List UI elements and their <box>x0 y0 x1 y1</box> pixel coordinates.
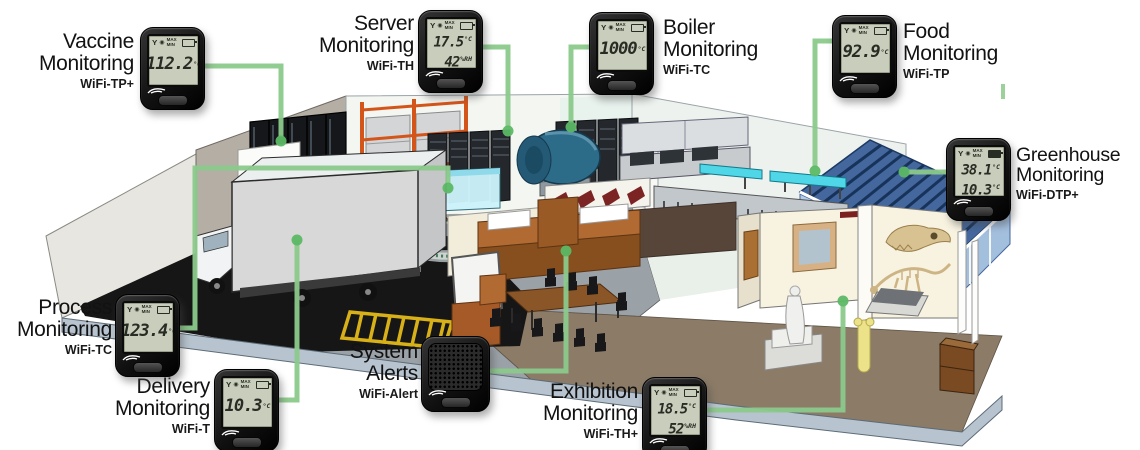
kitchen <box>545 117 750 216</box>
lcd-screen: Y ◉ MAX MIN 18.5°C 52%RH <box>649 384 702 437</box>
battery-icon <box>460 22 473 30</box>
partition-walls <box>238 142 658 238</box>
sensor-device-server: Y ◉ MAX MIN 17.5°C 42%RH <box>418 10 483 93</box>
easylog-logo-icon <box>596 71 616 80</box>
alarm-icon: ◉ <box>437 23 442 29</box>
alarm-icon: ◉ <box>134 307 139 313</box>
label-title: Greenhouse Monitoring <box>1016 145 1140 186</box>
wifi-antenna-icon: Y <box>844 27 849 34</box>
wifi-antenna-icon: Y <box>958 150 963 157</box>
lcd-screen: Y ◉ MAX MIN 123.4°C <box>122 301 175 354</box>
label-model: WiFi-DTP+ <box>1016 189 1140 202</box>
conveyor-belt <box>352 214 496 272</box>
battery-icon <box>874 27 887 35</box>
connector-process <box>177 168 448 328</box>
delivery-truck <box>196 150 446 307</box>
lcd-status-icons: Y ◉ MAX MIN <box>841 24 890 35</box>
lcd-reading: 1000°C <box>598 32 647 66</box>
connector-dot-vaccine-freezers <box>276 136 287 147</box>
easylog-logo-icon <box>428 388 448 397</box>
bone-exhibit <box>854 318 874 372</box>
alarm-icon: ◉ <box>233 382 238 388</box>
label-food-monitoring: Food Monitoring WiFi-TP <box>903 21 1053 81</box>
lcd-status-icons: Y ◉ MAX MIN <box>223 378 272 389</box>
lcd-status-icons: Y ◉ MAX MIN <box>427 19 476 30</box>
alarm-icon: ◉ <box>851 28 856 34</box>
lcd-screen: Y ◉ MAX MIN 17.5°C 42%RH <box>425 17 478 70</box>
statue <box>765 286 822 370</box>
easylog-logo-icon <box>839 74 859 83</box>
dinosaur-skull <box>886 225 950 251</box>
wifi-antenna-icon: Y <box>601 24 606 31</box>
label-model: WiFi-TH+ <box>482 428 638 441</box>
device-button <box>436 78 466 89</box>
device-button <box>660 445 690 450</box>
alarm-icon: ◉ <box>159 40 164 46</box>
label-title: Delivery Monitoring <box>62 376 210 420</box>
label-delivery-monitoring: Delivery Monitoring WiFi-T <box>62 376 210 436</box>
label-model: WiFi-TC <box>0 344 112 357</box>
food-display-cases <box>654 164 848 242</box>
connector-boiler <box>571 47 590 123</box>
connector-dot-server-racks <box>503 126 514 137</box>
battery-icon <box>631 24 644 32</box>
lcd-reading: 92.9°C <box>841 35 890 69</box>
lcd-status-icons: Y ◉ MAX MIN <box>651 386 700 397</box>
device-button <box>158 95 188 106</box>
lcd-status-icons: Y ◉ MAX MIN <box>598 21 647 32</box>
wifi-antenna-icon: Y <box>430 22 435 29</box>
device-button <box>133 362 163 373</box>
lcd-reading: 10.3°C <box>223 389 272 423</box>
interior-walls <box>448 202 736 276</box>
boiler <box>517 130 600 196</box>
wifi-monitoring-diagram: Vaccine Monitoring WiFi-TP+ Server Monit… <box>0 0 1140 450</box>
label-greenhouse-monitoring: Greenhouse Monitoring WiFi-DTP+ <box>1016 145 1140 202</box>
sensor-device-greenhouse: Y ◉ MAX MIN 38.1°C 10.3°C <box>946 138 1011 221</box>
max-min-icon: MAX MIN <box>616 23 626 32</box>
connector-dot-food-cases <box>810 166 821 177</box>
connector-exhibition <box>706 306 843 410</box>
label-title: Vaccine Monitoring <box>6 31 134 75</box>
lcd-screen: Y ◉ MAX MIN 1000°C <box>596 19 649 72</box>
lcd-status-icons: Y ◉ MAX MIN <box>149 36 198 47</box>
easylog-logo-icon <box>953 197 973 206</box>
alarm-icon: ◉ <box>661 390 666 396</box>
label-model: WiFi-T <box>62 423 210 436</box>
battery-icon <box>157 306 170 314</box>
wifi-antenna-icon: Y <box>152 39 157 46</box>
label-exhibition-monitoring: Exhibition Monitoring WiFi-TH+ <box>482 381 638 441</box>
sensor-device-delivery: Y ◉ MAX MIN 10.3°C <box>214 369 279 450</box>
max-min-icon: MAX MIN <box>669 388 679 397</box>
lcd-reading: 123.4°C <box>124 314 173 348</box>
framed-picture <box>793 222 836 272</box>
connector-alerts <box>488 256 566 371</box>
battery-icon <box>256 381 269 389</box>
device-button <box>850 83 880 94</box>
lcd-screen: Y ◉ MAX MIN 10.3°C <box>221 376 274 429</box>
easylog-logo-icon <box>122 353 142 362</box>
sensor-device-vaccine: Y ◉ MAX MIN 112.2°C <box>140 27 205 110</box>
glass-partition <box>292 168 500 218</box>
label-vaccine-monitoring: Vaccine Monitoring WiFi-TP+ <box>6 31 134 91</box>
display-cabinet <box>940 338 978 394</box>
wifi-antenna-icon: Y <box>226 381 231 388</box>
alert-speaker-device <box>421 336 490 412</box>
max-min-icon: MAX MIN <box>241 380 251 389</box>
back-walls <box>46 94 906 318</box>
lcd-reading: 38.1°C 10.3°C <box>955 158 1004 198</box>
meeting-chairs <box>490 268 627 352</box>
laboratory-bench <box>478 197 640 282</box>
sensor-device-boiler: Y ◉ MAX MIN 1000°C <box>589 12 654 95</box>
server-racks <box>428 118 638 209</box>
max-min-icon: MAX MIN <box>142 305 152 314</box>
alarm-icon: ◉ <box>608 25 613 31</box>
projector-screen <box>452 252 502 316</box>
device-button <box>441 397 471 408</box>
max-min-icon: MAX MIN <box>973 149 983 158</box>
label-system-alerts: System Alerts WiFi-Alert <box>288 341 418 401</box>
lcd-status-icons: Y ◉ MAX MIN <box>955 147 1004 158</box>
meeting-table <box>506 284 622 312</box>
connector-dot-lab-bench <box>561 246 572 257</box>
label-title: Process Monitoring <box>0 297 112 341</box>
label-process-monitoring: Process Monitoring WiFi-TC <box>0 297 112 357</box>
device-button <box>964 206 994 217</box>
wifi-antenna-icon: Y <box>127 306 132 313</box>
label-model: WiFi-TH <box>250 60 414 73</box>
max-min-icon: MAX MIN <box>859 26 869 35</box>
lcd-screen: Y ◉ MAX MIN 92.9°C <box>839 22 892 75</box>
label-model: WiFi-TP+ <box>6 78 134 91</box>
sensor-device-food: Y ◉ MAX MIN 92.9°C <box>832 15 897 98</box>
label-title: Exhibition Monitoring <box>482 381 638 425</box>
museum-gallery <box>738 205 978 394</box>
label-title: System Alerts <box>288 341 418 385</box>
easylog-logo-icon <box>425 69 445 78</box>
battery-icon <box>182 39 195 47</box>
label-title: Boiler Monitoring <box>663 17 833 61</box>
sensor-device-exhibition: Y ◉ MAX MIN 18.5°C 52%RH <box>642 377 707 450</box>
label-model: WiFi-TC <box>663 64 833 77</box>
label-model: WiFi-Alert <box>288 388 418 401</box>
connector-dot-boiler <box>566 122 577 133</box>
label-title: Server Monitoring <box>250 13 414 57</box>
wooden-door <box>744 230 758 280</box>
speaker-grille <box>428 343 483 391</box>
lcd-reading: 17.5°C 42%RH <box>427 30 476 70</box>
connector-server <box>480 47 508 127</box>
max-min-icon: MAX MIN <box>445 21 455 30</box>
connector-vaccine <box>203 66 281 137</box>
lcd-screen: Y ◉ MAX MIN 112.2°C <box>147 34 200 87</box>
alarm-icon: ◉ <box>965 151 970 157</box>
vaccine-freezers <box>250 112 346 202</box>
lcd-reading: 18.5°C 52%RH <box>651 397 700 437</box>
easylog-logo-icon <box>649 436 669 445</box>
easylog-logo-icon <box>221 428 241 437</box>
connector-dot-truck <box>292 235 303 246</box>
sensor-device-process: Y ◉ MAX MIN 123.4°C <box>115 294 180 377</box>
label-server-monitoring: Server Monitoring WiFi-TH <box>250 13 414 73</box>
wifi-antenna-icon: Y <box>654 389 659 396</box>
floor-display-case <box>866 288 928 316</box>
pallet-racking <box>362 96 466 196</box>
connector-dot-museum <box>838 296 849 307</box>
connector-dot-conveyor <box>443 183 454 194</box>
device-button <box>607 80 637 91</box>
battery-icon <box>988 150 1001 158</box>
battery-icon <box>684 389 697 397</box>
lcd-screen: Y ◉ MAX MIN 38.1°C 10.3°C <box>953 145 1006 198</box>
label-model: WiFi-TP <box>903 68 1053 81</box>
device-button <box>232 437 262 448</box>
connector-dot-greenhouse <box>899 167 910 178</box>
lcd-status-icons: Y ◉ MAX MIN <box>124 303 173 314</box>
max-min-icon: MAX MIN <box>167 38 177 47</box>
label-title: Food Monitoring <box>903 21 1053 65</box>
label-boiler-monitoring: Boiler Monitoring WiFi-TC <box>663 17 833 77</box>
lcd-reading: 112.2°C <box>149 47 198 81</box>
easylog-logo-icon <box>147 86 167 95</box>
raptor-skeleton <box>870 264 950 296</box>
